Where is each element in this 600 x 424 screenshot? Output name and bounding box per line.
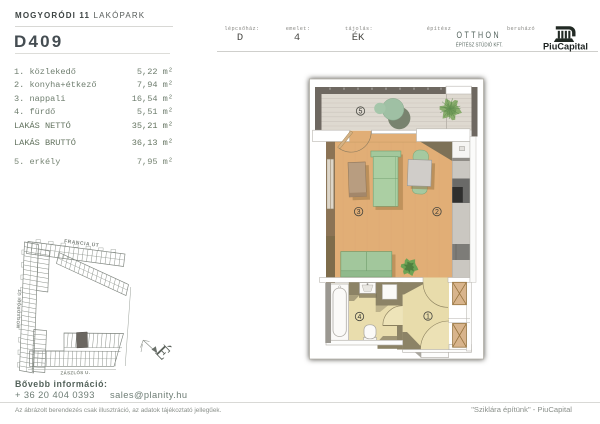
svg-text:3: 3 <box>357 209 361 216</box>
svg-text:5: 5 <box>359 109 363 116</box>
svg-text:É: É <box>151 341 175 365</box>
svg-text:FRANCIA ÚT: FRANCIA ÚT <box>64 238 100 249</box>
svg-text:PiuCapital: PiuCapital <box>543 41 588 51</box>
svg-text:1: 1 <box>426 314 430 321</box>
svg-text:OTTHON: OTTHON <box>457 30 502 40</box>
svg-text:ÉPÍTÉSZ STÚDIÓ KFT.: ÉPÍTÉSZ STÚDIÓ KFT. <box>456 42 503 49</box>
svg-text:2: 2 <box>435 209 439 216</box>
svg-text:4: 4 <box>358 314 362 321</box>
